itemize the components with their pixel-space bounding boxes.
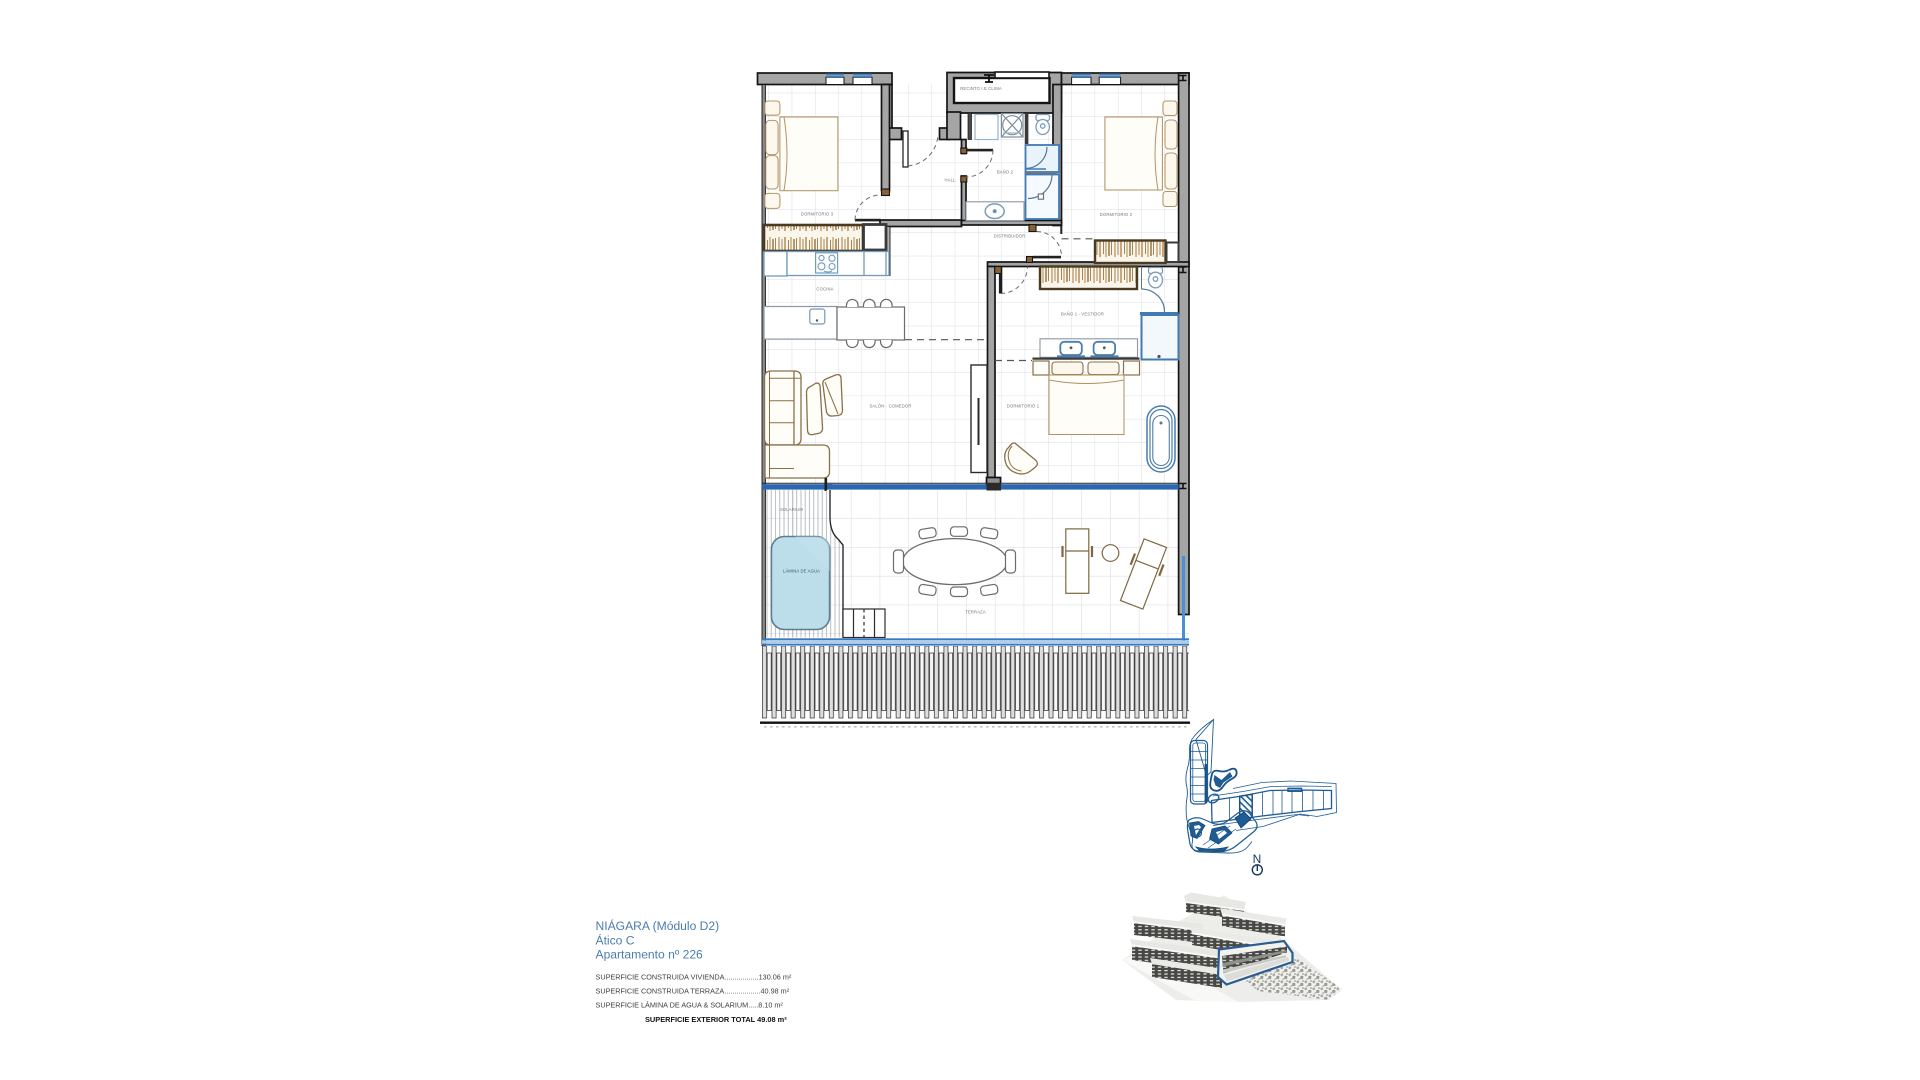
svg-text:SALÓN - COMEDOR: SALÓN - COMEDOR (869, 404, 911, 409)
svg-text:SUPERFICIE EXTERIOR TOTAL 49.0: SUPERFICIE EXTERIOR TOTAL 49.08 m² (645, 1015, 787, 1024)
svg-text:Ático C: Ático C (596, 932, 635, 947)
svg-text:N: N (1253, 852, 1262, 866)
svg-text:DORMITORIO 3: DORMITORIO 3 (801, 212, 834, 217)
svg-text:DISTRIBUIDOR: DISTRIBUIDOR (994, 234, 1026, 239)
svg-text:LÁMINA DE AGUA: LÁMINA DE AGUA (783, 569, 820, 574)
svg-text:DORMITORIO 1: DORMITORIO 1 (1007, 404, 1040, 409)
svg-text:NIÁGARA (Módulo D2): NIÁGARA (Módulo D2) (596, 918, 720, 933)
svg-text:SOLARIUM: SOLARIUM (780, 507, 803, 512)
svg-text:RECINTO I.E CLIMA: RECINTO I.E CLIMA (960, 86, 1002, 91)
svg-text:COCINA: COCINA (816, 287, 833, 292)
svg-text:SUPERFICIE CONSTRUIDA VIVIENDA: SUPERFICIE CONSTRUIDA VIVIENDA..........… (596, 973, 792, 982)
svg-text:DORMITORIO 2: DORMITORIO 2 (1100, 212, 1133, 217)
svg-text:TERRAZA: TERRAZA (965, 610, 986, 615)
svg-text:Apartamento nº 226: Apartamento nº 226 (596, 948, 704, 962)
svg-text:HALL: HALL (944, 178, 956, 183)
svg-text:BAÑO 2: BAÑO 2 (997, 170, 1014, 175)
svg-text:SUPERFICIE CONSTRUIDA TERRAZA.: SUPERFICIE CONSTRUIDA TERRAZA...........… (596, 987, 790, 996)
svg-text:SUPERFICIE LÁMINA DE AGUA & SO: SUPERFICIE LÁMINA DE AGUA & SOLARIUM....… (596, 1001, 784, 1010)
svg-text:BAÑO 1 - VESTIDOR: BAÑO 1 - VESTIDOR (1061, 312, 1104, 317)
